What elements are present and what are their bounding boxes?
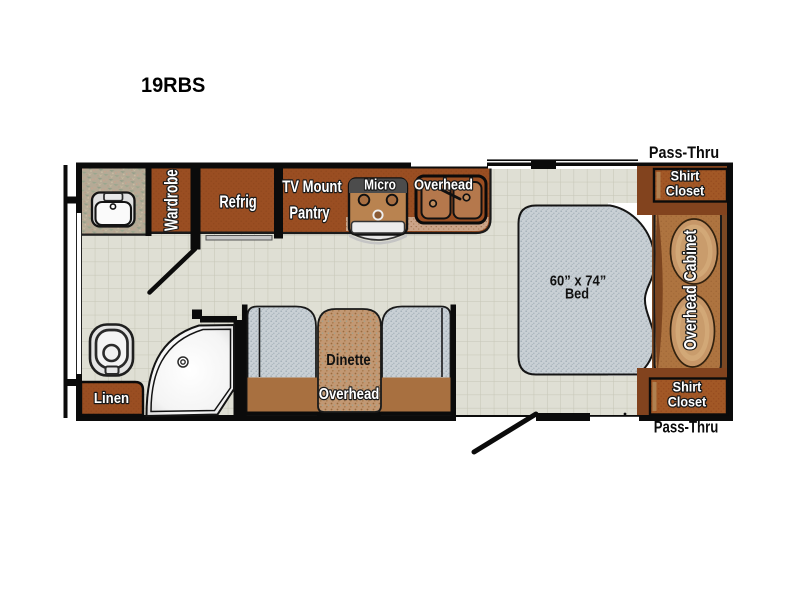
svg-text:Micro: Micro: [364, 176, 396, 192]
svg-text:Overhead: Overhead: [414, 177, 473, 193]
svg-text:Closet: Closet: [666, 183, 705, 199]
svg-text:Pantry: Pantry: [289, 204, 330, 223]
svg-text:Wardrobe: Wardrobe: [161, 169, 182, 231]
svg-text:Pass-Thru: Pass-Thru: [654, 418, 719, 437]
svg-text:Linen: Linen: [94, 389, 129, 406]
svg-text:Shirt: Shirt: [673, 379, 702, 395]
svg-text:Shirt: Shirt: [671, 168, 700, 184]
svg-text:Refrig: Refrig: [219, 193, 256, 212]
svg-text:TV Mount: TV Mount: [282, 177, 342, 196]
svg-text:Dinette: Dinette: [326, 352, 370, 369]
svg-text:Overhead Cabinet: Overhead Cabinet: [680, 229, 700, 350]
svg-text:Overhead: Overhead: [319, 386, 380, 403]
svg-text:19RBS: 19RBS: [141, 74, 205, 98]
svg-text:Bed: Bed: [565, 284, 589, 301]
svg-text:Pass-Thru: Pass-Thru: [649, 144, 719, 162]
svg-text:Closet: Closet: [668, 394, 707, 410]
